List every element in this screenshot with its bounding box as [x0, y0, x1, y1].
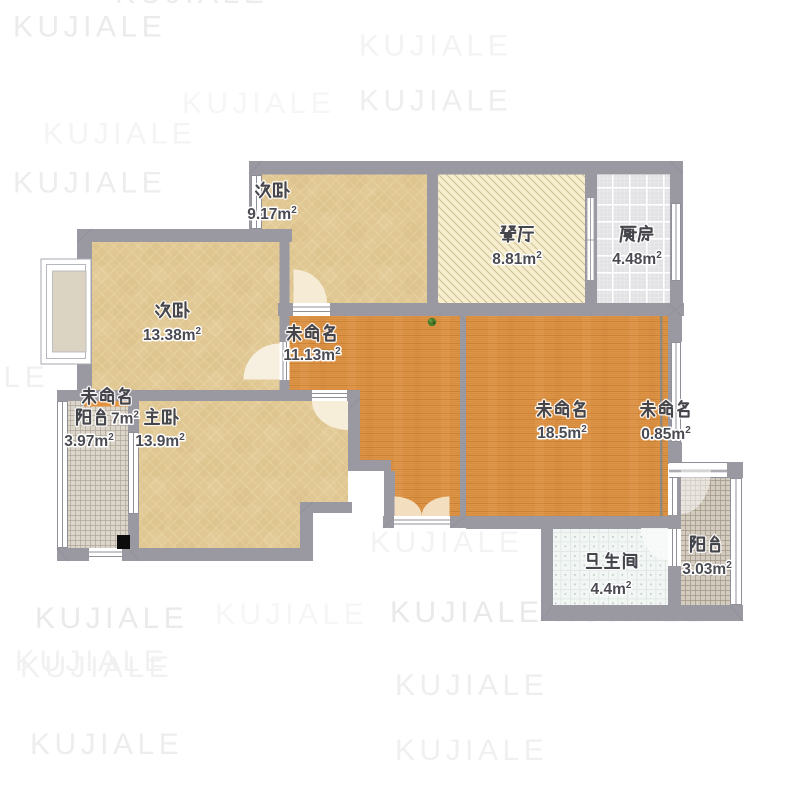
svg-text:KUJIALE: KUJIALE [20, 651, 173, 684]
svg-text:KUJIALE: KUJIALE [359, 85, 512, 118]
svg-text:KUJIALE: KUJIALE [35, 602, 188, 635]
svg-text:3.97m2: 3.97m2 [64, 432, 114, 450]
svg-text:KUJIALE: KUJIALE [30, 728, 183, 761]
svg-text:KUJIALE: KUJIALE [43, 118, 196, 151]
svg-text:KUJIALE: KUJIALE [13, 11, 166, 44]
svg-text:KUJIALE: KUJIALE [13, 167, 166, 200]
svg-text:0.85m2: 0.85m2 [641, 425, 691, 443]
svg-text:9.17m2: 9.17m2 [247, 205, 297, 223]
svg-text:KUJIALE: KUJIALE [395, 734, 548, 767]
svg-text:KUJIALE: KUJIALE [215, 598, 368, 631]
svg-text:KUJIALE: KUJIALE [182, 87, 335, 120]
svg-text:KUJIALE: KUJIALE [115, 0, 268, 10]
svg-text:KUJIALE: KUJIALE [395, 669, 548, 702]
svg-text:8.81m2: 8.81m2 [492, 250, 542, 268]
svg-text:KUJIALE: KUJIALE [359, 30, 512, 63]
svg-text:KUJIALE: KUJIALE [390, 596, 543, 629]
svg-text:KUJIALE: KUJIALE [0, 361, 49, 394]
svg-text:18.5m2: 18.5m2 [537, 424, 587, 442]
svg-text:13.9m2: 13.9m2 [135, 432, 185, 450]
svg-text:4.48m2: 4.48m2 [612, 250, 662, 268]
svg-text:3.03m2: 3.03m2 [682, 560, 732, 578]
svg-text:13.38m2: 13.38m2 [143, 326, 202, 344]
svg-text:KUJIALE: KUJIALE [370, 526, 523, 559]
svg-text:4.4m2: 4.4m2 [591, 580, 632, 598]
svg-text:11.13m2: 11.13m2 [283, 346, 341, 364]
